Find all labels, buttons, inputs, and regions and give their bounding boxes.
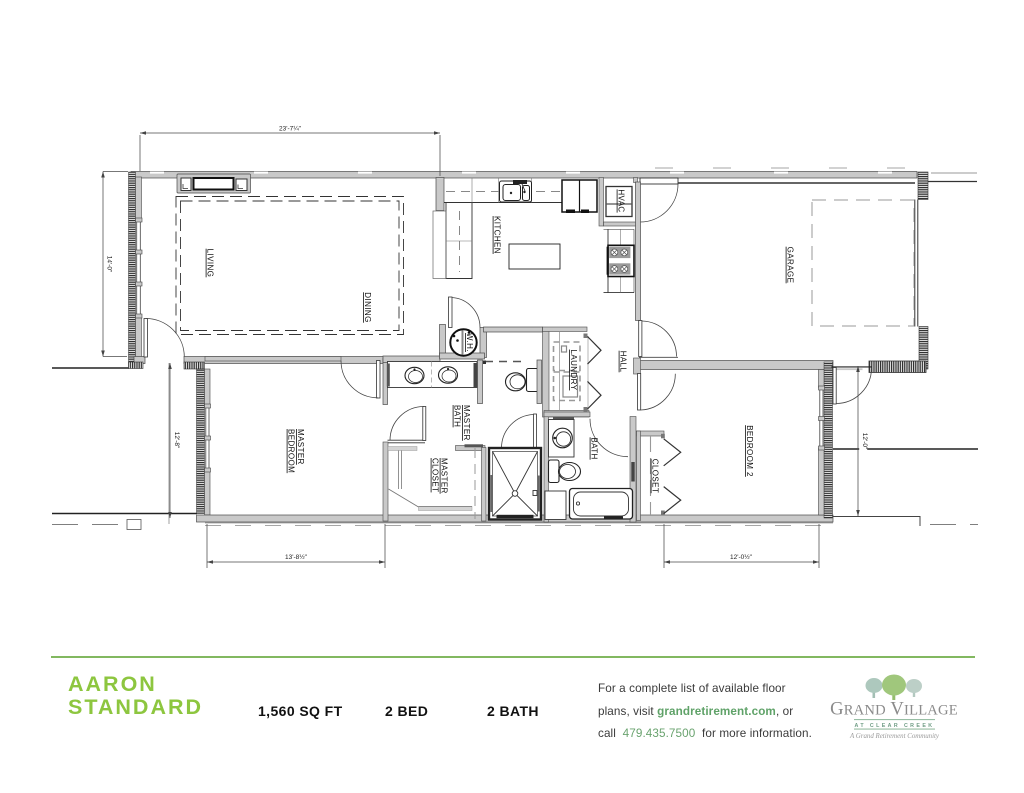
svg-text:HALL: HALL <box>619 351 628 373</box>
svg-text:LAUNDRY: LAUNDRY <box>569 350 578 391</box>
svg-text:12'-8": 12'-8" <box>173 432 180 449</box>
svg-text:HVAC: HVAC <box>617 189 626 212</box>
svg-text:BATH: BATH <box>590 437 599 459</box>
svg-text:KITCHEN: KITCHEN <box>493 216 502 254</box>
svg-text:MASTER: MASTER <box>440 458 449 494</box>
svg-text:GARAGE: GARAGE <box>786 247 795 284</box>
svg-text:CLOSET: CLOSET <box>431 458 440 492</box>
svg-text:A Grand Retirement Community: A Grand Retirement Community <box>849 733 940 740</box>
svg-text:12'-0": 12'-0" <box>861 433 868 450</box>
svg-text:AT CLEAR CREEK: AT CLEAR CREEK <box>855 723 935 729</box>
svg-text:23'-7¼": 23'-7¼" <box>279 126 302 133</box>
svg-text:MASTER: MASTER <box>296 429 305 465</box>
svg-text:GRAND VILLAGE: GRAND VILLAGE <box>830 699 958 720</box>
svg-text:DINING: DINING <box>363 292 372 322</box>
svg-text:12'-0½": 12'-0½" <box>730 553 753 561</box>
svg-text:W.H.: W.H. <box>465 333 474 352</box>
svg-text:CLOSET: CLOSET <box>651 459 660 493</box>
svg-text:BATH: BATH <box>453 405 462 427</box>
svg-text:LIVING: LIVING <box>206 249 215 278</box>
svg-text:BEDROOM: BEDROOM <box>287 429 296 473</box>
svg-text:14'-0": 14'-0" <box>106 256 113 273</box>
svg-text:BEDROOM 2: BEDROOM 2 <box>745 425 754 477</box>
svg-text:MASTER: MASTER <box>462 405 471 441</box>
svg-text:13'-8½": 13'-8½" <box>285 553 308 561</box>
